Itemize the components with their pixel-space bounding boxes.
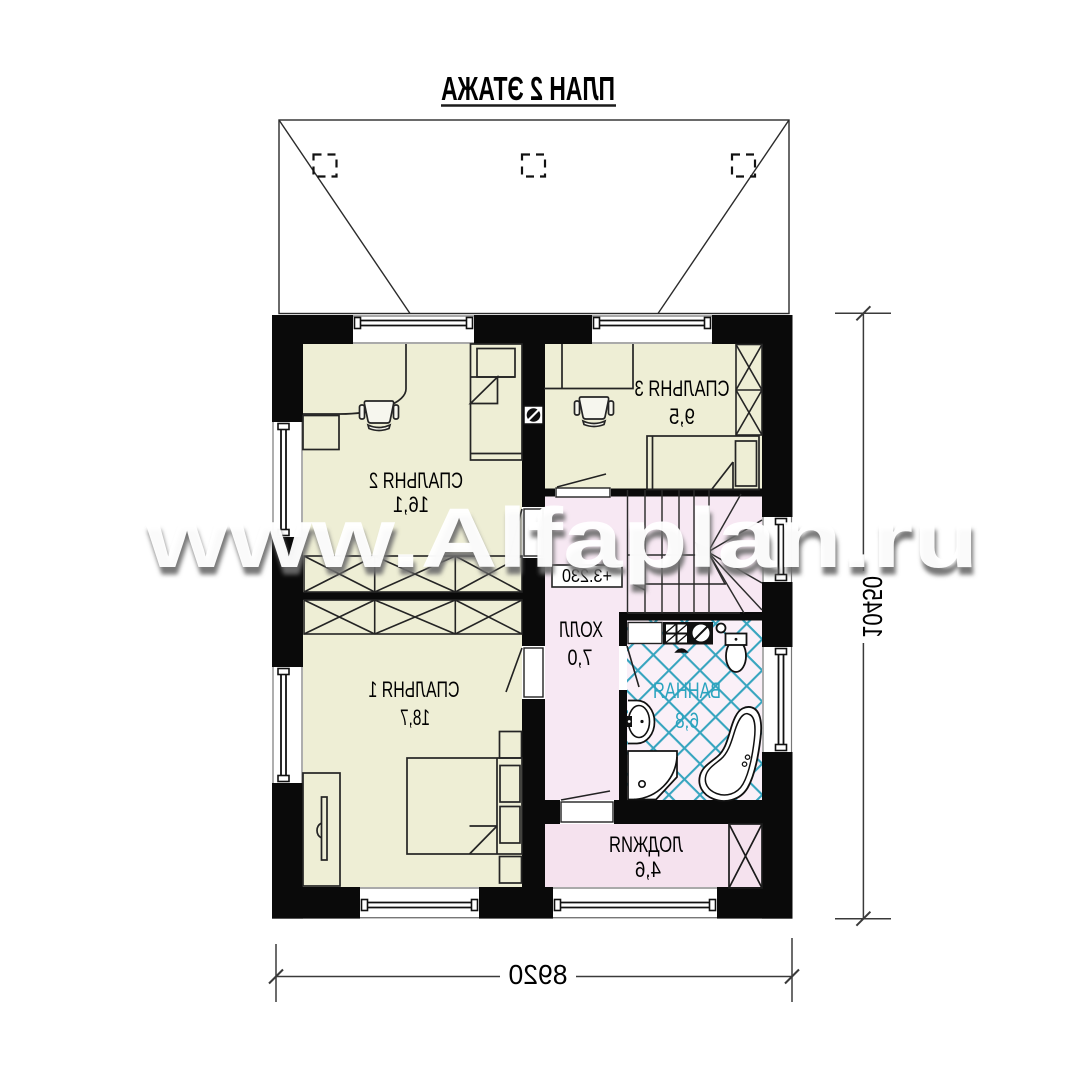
svg-text:8920: 8920: [509, 959, 568, 990]
svg-text:ЛОДЖИЯ: ЛОДЖИЯ: [609, 832, 683, 857]
svg-text:СПАЛЬНЯ 3: СПАЛЬНЯ 3: [635, 376, 730, 401]
svg-text:4,6: 4,6: [635, 857, 661, 882]
svg-text:18,7: 18,7: [400, 705, 430, 730]
svg-text:6,8: 6,8: [675, 708, 699, 733]
svg-text:ВАННАЯ: ВАННАЯ: [653, 678, 721, 703]
svg-text:ПЛАН 2 ЭТАЖА: ПЛАН 2 ЭТАЖА: [441, 70, 615, 107]
svg-text:ХОЛЛ: ХОЛЛ: [559, 617, 603, 642]
svg-text:9,5: 9,5: [669, 404, 695, 429]
svg-text:www.Alfaplan.ru: www.Alfaplan.ru: [144, 491, 978, 585]
svg-text:СПАЛЬНЯ 1: СПАЛЬНЯ 1: [369, 677, 460, 702]
svg-text:7,0: 7,0: [568, 645, 593, 670]
svg-text:СПАЛЬНЯ 2: СПАЛЬНЯ 2: [369, 468, 463, 493]
